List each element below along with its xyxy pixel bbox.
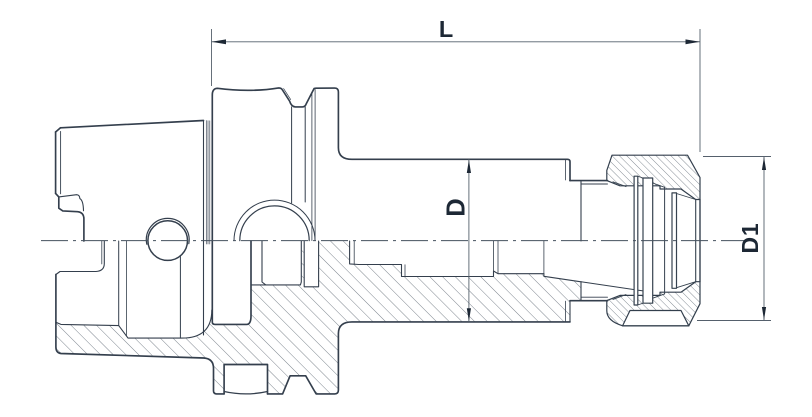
svg-text:D1: D1 <box>737 222 763 253</box>
svg-text:D: D <box>443 198 471 216</box>
svg-text:L: L <box>439 16 453 42</box>
